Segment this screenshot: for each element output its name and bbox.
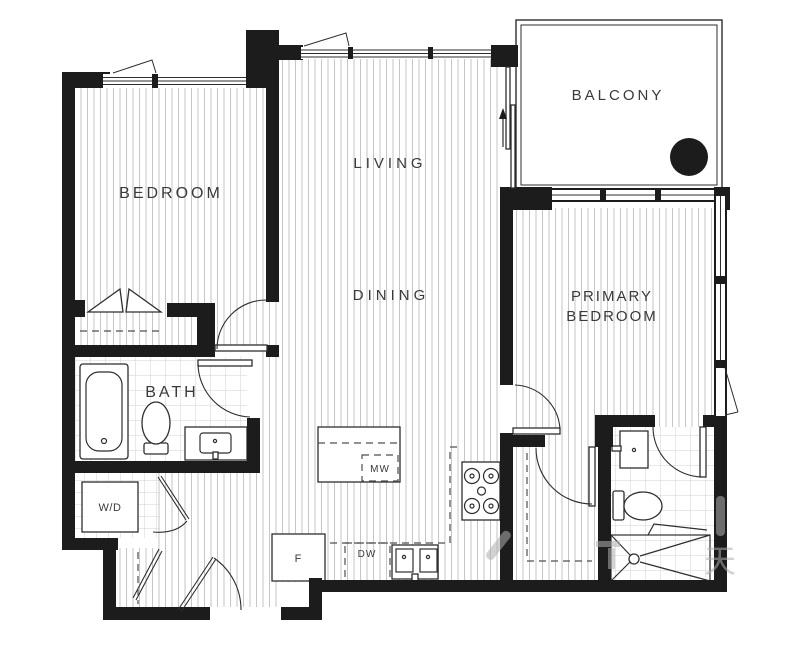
dining-label: DINING (353, 287, 430, 304)
kitchen-sink (392, 545, 438, 582)
primary-bedroom-top-window (552, 190, 714, 200)
corridor-floor (258, 345, 279, 473)
primary-bedroom-label-line2: BEDROOM (566, 308, 658, 325)
watermark-fragment (608, 548, 615, 569)
washer-dryer-label: W/D (99, 502, 122, 514)
entry-floor (158, 473, 279, 607)
bath-vanity-sink (185, 427, 247, 460)
balcony-table (670, 138, 708, 176)
living-label: LIVING (353, 155, 426, 172)
microwave-label: MW (370, 464, 390, 475)
living-window (301, 33, 491, 59)
watermark-fragment (596, 541, 620, 547)
watermark-glyph: 天 (704, 543, 736, 579)
primary-bedroom-label-line1: PRIMARY (571, 288, 653, 305)
bath-label: BATH (145, 384, 198, 401)
bedroom-label: BEDROOM (119, 185, 223, 202)
bedroom-window (103, 60, 246, 88)
stove (462, 462, 500, 520)
laundry-closet: W/D (82, 482, 138, 532)
ensuite-toilet (613, 491, 662, 520)
floor-plan-svg: BALCONY MW F DW (0, 0, 800, 645)
balcony-label: BALCONY (572, 87, 665, 104)
fridge-label: F (295, 553, 302, 565)
toilet (142, 402, 170, 454)
bedroom-hall-floor (213, 299, 279, 345)
walkin-closet-floor (513, 447, 598, 580)
balcony: BALCONY (516, 20, 722, 190)
floor-plan-page: BALCONY MW F DW (0, 0, 800, 645)
watermark-fragment (716, 496, 725, 536)
dishwasher-label: DW (358, 549, 377, 560)
